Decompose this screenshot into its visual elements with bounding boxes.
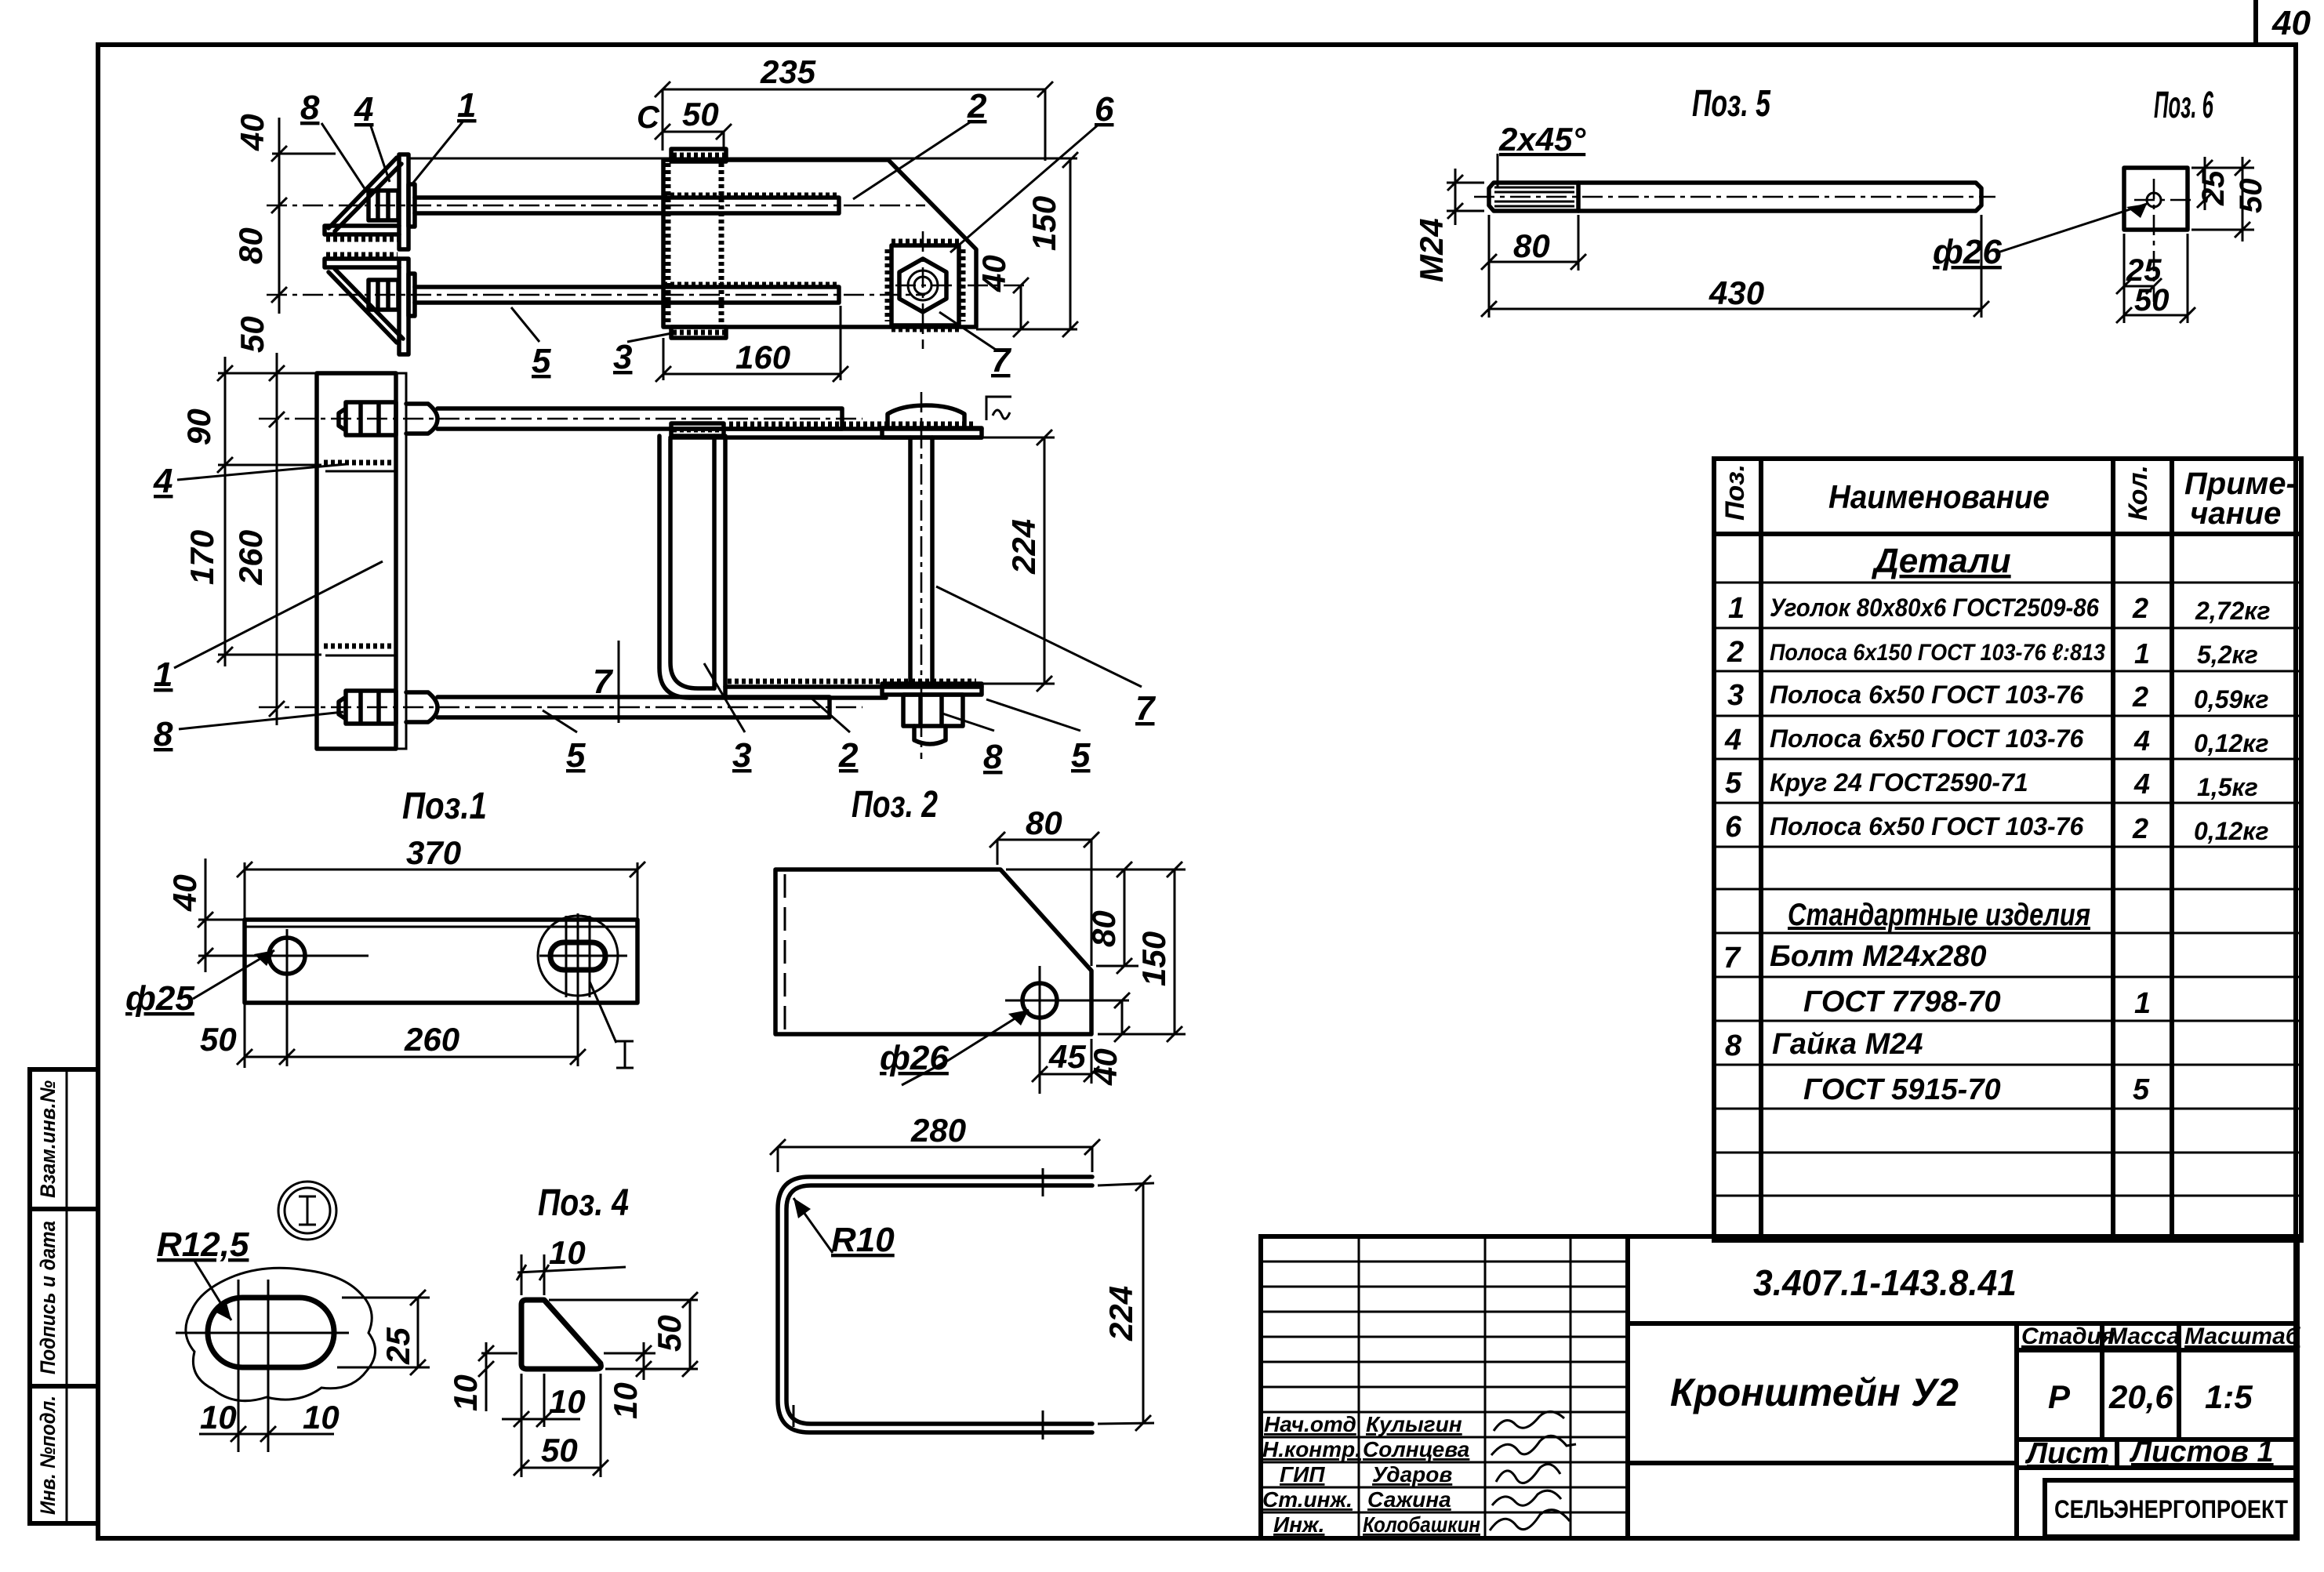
svg-text:6: 6 — [1095, 90, 1114, 129]
svg-text:4: 4 — [354, 90, 373, 129]
svg-text:Ударов: Ударов — [1372, 1462, 1452, 1487]
svg-text:Масштаб: Масштаб — [2184, 1323, 2301, 1349]
svg-text:40: 40 — [166, 874, 203, 912]
svg-text:3.407.1-143.8.41: 3.407.1-143.8.41 — [1753, 1262, 2017, 1303]
svg-text:Поз. 2: Поз. 2 — [852, 784, 938, 826]
svg-text:Наименование: Наименование — [1828, 478, 2050, 515]
svg-text:СЕЛЬЭНЕРГОПРОЕКТ: СЕЛЬЭНЕРГОПРОЕКТ — [2054, 1495, 2288, 1523]
svg-text:Полоса 6х150 ГОСТ 103-76 ℓ:813: Полоса 6х150 ГОСТ 103-76 ℓ:813 — [1770, 640, 2105, 666]
svg-text:80: 80 — [1085, 910, 1122, 947]
svg-text:ф26: ф26 — [1933, 233, 2002, 271]
svg-text:50: 50 — [651, 1315, 688, 1352]
svg-text:10: 10 — [549, 1234, 586, 1271]
svg-text:Н.контр.: Н.контр. — [1262, 1437, 1361, 1461]
svg-text:Ст.инж.: Ст.инж. — [1262, 1487, 1353, 1512]
svg-text:224: 224 — [1005, 519, 1042, 575]
svg-text:235: 235 — [760, 53, 816, 90]
svg-text:40: 40 — [975, 255, 1012, 292]
svg-text:45: 45 — [1048, 1038, 1086, 1075]
svg-text:2: 2 — [838, 736, 859, 775]
svg-text:2: 2 — [2132, 592, 2148, 624]
svg-text:224: 224 — [1102, 1286, 1139, 1341]
svg-text:1: 1 — [457, 86, 476, 125]
svg-text:430: 430 — [1709, 274, 1764, 311]
svg-text:8: 8 — [983, 738, 1003, 776]
svg-text:8: 8 — [300, 89, 320, 127]
svg-text:Инв. №подл.: Инв. №подл. — [36, 1396, 60, 1515]
svg-text:150: 150 — [1026, 196, 1062, 251]
svg-text:Поз. 6: Поз. 6 — [2154, 85, 2213, 126]
svg-text:4: 4 — [2133, 724, 2150, 757]
svg-text:1:5: 1:5 — [2205, 1378, 2253, 1415]
svg-text:Взам.инв.№: Взам.инв.№ — [36, 1080, 60, 1198]
svg-text:7: 7 — [1723, 942, 1741, 975]
svg-text:370: 370 — [406, 834, 461, 871]
svg-text:7: 7 — [991, 341, 1012, 379]
svg-text:Колобашкин: Колобашкин — [1363, 1512, 1480, 1537]
svg-text:7: 7 — [1135, 689, 1157, 728]
svg-text:2х45°: 2х45° — [1498, 121, 1586, 158]
svg-text:7: 7 — [593, 663, 614, 701]
svg-text:3: 3 — [613, 338, 632, 376]
svg-text:Лист: Лист — [2024, 1437, 2108, 1470]
svg-text:Болт М24х280: Болт М24х280 — [1770, 940, 1987, 973]
svg-text:Уголок 80х80х6 ГОСТ2509-86: Уголок 80х80х6 ГОСТ2509-86 — [1770, 594, 2099, 622]
svg-text:2,72кг: 2,72кг — [2195, 597, 2271, 625]
svg-text:3: 3 — [1727, 679, 1744, 712]
svg-text:5: 5 — [566, 736, 586, 775]
svg-text:ГОСТ 7798-70: ГОСТ 7798-70 — [1803, 986, 2001, 1018]
svg-text:Подпись и дата: Подпись и дата — [36, 1221, 60, 1374]
svg-text:R12,5: R12,5 — [157, 1225, 249, 1264]
svg-text:160: 160 — [735, 339, 790, 376]
svg-text:10: 10 — [549, 1383, 586, 1420]
svg-text:150: 150 — [1135, 931, 1172, 986]
svg-text:50: 50 — [682, 96, 719, 133]
svg-text:ГОСТ 5915-70: ГОСТ 5915-70 — [1803, 1073, 2001, 1106]
svg-text:50: 50 — [234, 316, 271, 353]
svg-text:1: 1 — [2134, 637, 2150, 670]
svg-text:Нач.отд: Нач.отд — [1264, 1412, 1356, 1436]
svg-text:5: 5 — [1071, 736, 1091, 775]
svg-text:50: 50 — [2134, 283, 2170, 318]
svg-text:0,12кг: 0,12кг — [2194, 817, 2269, 845]
svg-text:Кронштейн У2: Кронштейн У2 — [1670, 1371, 1959, 1414]
svg-text:М24: М24 — [1413, 218, 1450, 282]
svg-text:20,6: 20,6 — [2108, 1378, 2173, 1415]
svg-text:чание: чание — [2190, 496, 2281, 531]
svg-text:Инж.: Инж. — [1273, 1512, 1324, 1537]
svg-text:Поз. 5: Поз. 5 — [1692, 83, 1771, 125]
svg-text:Р: Р — [2048, 1378, 2071, 1415]
svg-text:80: 80 — [1026, 804, 1062, 841]
svg-text:1: 1 — [154, 655, 172, 694]
svg-text:0,59кг: 0,59кг — [2194, 685, 2269, 713]
svg-text:Листов 1: Листов 1 — [2129, 1436, 2274, 1469]
svg-text:80: 80 — [232, 227, 269, 264]
svg-text:2: 2 — [967, 87, 987, 125]
svg-text:Стандартные изделия: Стандартные изделия — [1788, 898, 2090, 932]
svg-text:280: 280 — [910, 1112, 966, 1149]
svg-text:90: 90 — [180, 408, 217, 445]
svg-text:25: 25 — [2196, 170, 2231, 206]
svg-text:10: 10 — [200, 1399, 237, 1436]
svg-text:260: 260 — [232, 530, 269, 586]
svg-text:10: 10 — [447, 1374, 484, 1411]
svg-text:25: 25 — [379, 1327, 416, 1365]
svg-text:50: 50 — [2234, 179, 2268, 214]
svg-text:4: 4 — [153, 462, 172, 500]
svg-text:0,12кг: 0,12кг — [2194, 729, 2269, 757]
svg-text:8: 8 — [154, 715, 173, 753]
svg-text:3: 3 — [732, 736, 751, 775]
svg-text:170: 170 — [183, 530, 220, 585]
svg-text:8: 8 — [1725, 1029, 1742, 1062]
svg-text:ГИП: ГИП — [1280, 1462, 1325, 1487]
svg-text:4: 4 — [1724, 724, 1741, 757]
svg-text:Гайка М24: Гайка М24 — [1772, 1028, 1923, 1061]
svg-text:5: 5 — [1725, 767, 1742, 800]
svg-text:80: 80 — [1513, 227, 1550, 264]
svg-text:Солнцева: Солнцева — [1363, 1437, 1469, 1461]
svg-text:2: 2 — [2132, 812, 2148, 844]
svg-text:260: 260 — [404, 1021, 459, 1058]
svg-text:10: 10 — [607, 1382, 644, 1419]
svg-text:10: 10 — [303, 1399, 340, 1436]
svg-text:Поз.: Поз. — [1720, 464, 1750, 521]
svg-text:5: 5 — [2133, 1073, 2150, 1106]
svg-text:1,5кг: 1,5кг — [2197, 773, 2258, 801]
svg-text:6: 6 — [1725, 811, 1742, 844]
svg-text:Кол.: Кол. — [2123, 465, 2153, 521]
svg-text:5,2кг: 5,2кг — [2197, 641, 2258, 669]
svg-text:50: 50 — [541, 1432, 578, 1469]
svg-text:ф25: ф25 — [125, 979, 194, 1018]
svg-text:Полоса 6х50 ГОСТ 103-76: Полоса 6х50 ГОСТ 103-76 — [1770, 812, 2083, 840]
svg-text:1: 1 — [2134, 987, 2151, 1020]
svg-text:Сажина: Сажина — [1367, 1487, 1451, 1512]
svg-text:4: 4 — [2133, 768, 2150, 800]
svg-text:Поз.1: Поз.1 — [402, 786, 487, 827]
svg-text:40: 40 — [2271, 4, 2311, 42]
svg-text:50: 50 — [200, 1021, 237, 1058]
svg-text:Полоса 6х50 ГОСТ 103-76: Полоса 6х50 ГОСТ 103-76 — [1770, 724, 2083, 753]
svg-text:ф26: ф26 — [880, 1039, 949, 1077]
svg-text:С: С — [637, 100, 660, 135]
svg-text:1: 1 — [1728, 592, 1745, 625]
svg-text:Масса: Масса — [2108, 1323, 2180, 1349]
svg-text:2: 2 — [1727, 636, 1744, 669]
svg-text:5: 5 — [532, 342, 551, 380]
svg-text:Стадия: Стадия — [2021, 1323, 2115, 1349]
svg-text:R10: R10 — [831, 1221, 895, 1259]
svg-text:40: 40 — [234, 114, 271, 151]
svg-text:Поз. 4: Поз. 4 — [538, 1182, 629, 1224]
svg-text:Круг 24 ГОСТ2590-71: Круг 24 ГОСТ2590-71 — [1770, 768, 2028, 797]
svg-text:Детали: Детали — [1871, 542, 2011, 580]
svg-text:Полоса 6х50 ГОСТ 103-76: Полоса 6х50 ГОСТ 103-76 — [1770, 681, 2083, 709]
svg-text:2: 2 — [2132, 681, 2148, 713]
svg-text:Кулыгин: Кулыгин — [1366, 1412, 1462, 1436]
